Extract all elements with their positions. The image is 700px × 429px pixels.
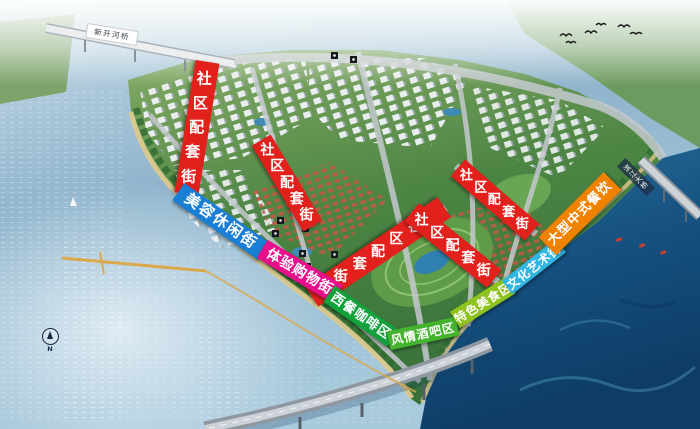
road-name-plate <box>299 250 306 257</box>
planning-map: 社区配套街 社区配套街 社区配套街 社区配套街 社区配套街 美容休闲街 体验购物… <box>0 0 700 429</box>
road-name-plate <box>350 56 357 63</box>
compass-n-label: N <box>40 345 60 353</box>
sailboat-icon <box>70 197 77 206</box>
road-name-plate <box>277 217 284 224</box>
compass-ring <box>42 328 59 345</box>
compass-north-icon: N <box>40 328 60 353</box>
road-name-plate <box>331 52 338 59</box>
road-name-plate <box>331 251 338 258</box>
road-name-plate <box>272 230 279 237</box>
